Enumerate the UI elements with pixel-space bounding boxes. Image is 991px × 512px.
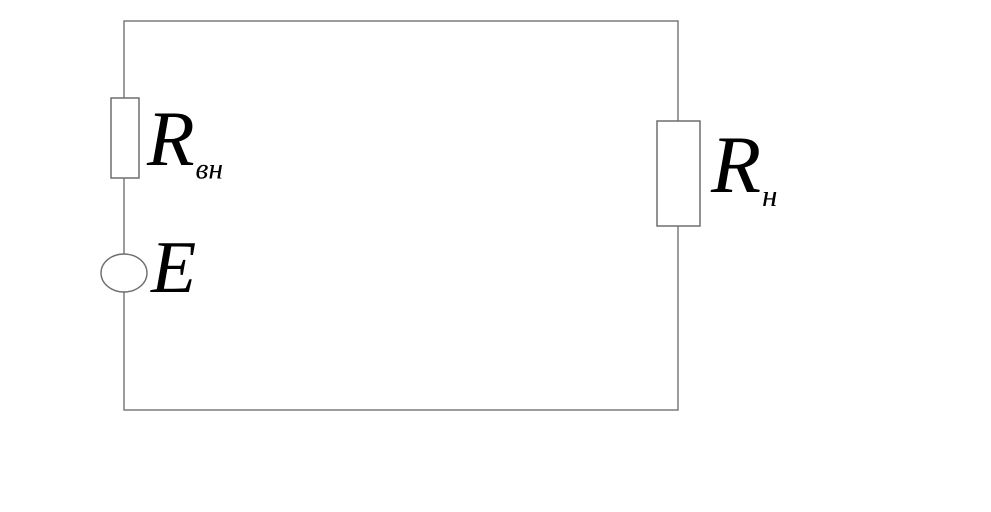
internal-resistor-icon [111, 98, 139, 178]
emf-source-icon [101, 254, 147, 292]
load-resistor-icon [657, 121, 700, 226]
emf-label: E [151, 231, 196, 305]
circuit-diagram: Rвн E Rн [0, 0, 991, 512]
load-resistance-label-subscript: н [762, 180, 777, 211]
circuit-schematic [0, 0, 991, 512]
internal-resistance-label-base: R [147, 95, 195, 182]
internal-resistance-label: Rвн [147, 100, 223, 178]
emf-label-base: E [151, 227, 196, 309]
load-resistance-label: Rн [711, 124, 777, 206]
internal-resistance-label-subscript: вн [196, 155, 224, 185]
load-resistance-label-base: R [711, 119, 761, 210]
wire-loop [124, 21, 678, 410]
